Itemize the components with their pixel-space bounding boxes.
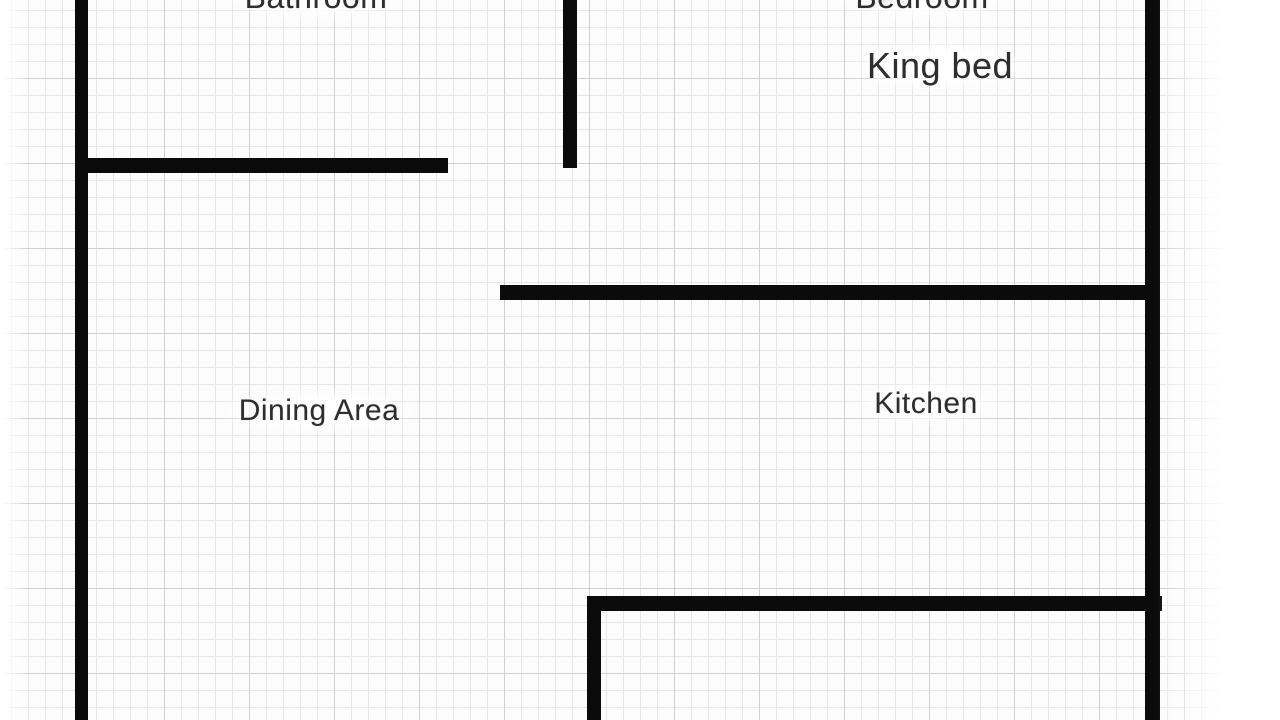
wall-bottom-vertical [587, 596, 601, 720]
wall-bathroom-bottom [75, 158, 448, 173]
kitchen-label: Kitchen [852, 381, 1000, 427]
wall-kitchen-top [500, 285, 1145, 300]
bathroom-label: Bathroom [223, 0, 410, 21]
wall-bathroom-bedroom-divider [563, 0, 577, 168]
bedroom-label: Bedroom [833, 0, 1010, 21]
king-bed-label: King bed [845, 40, 1035, 92]
graph-paper-background: Bathroom Bedroom King bed Dining Area Ki… [0, 0, 1280, 720]
dining-area-label: Dining Area [217, 388, 422, 434]
wall-right-exterior [1145, 0, 1160, 720]
wall-left-exterior [75, 0, 88, 720]
floor-plan: Bathroom Bedroom King bed Dining Area Ki… [0, 0, 1280, 720]
wall-kitchen-bottom [587, 596, 1162, 611]
